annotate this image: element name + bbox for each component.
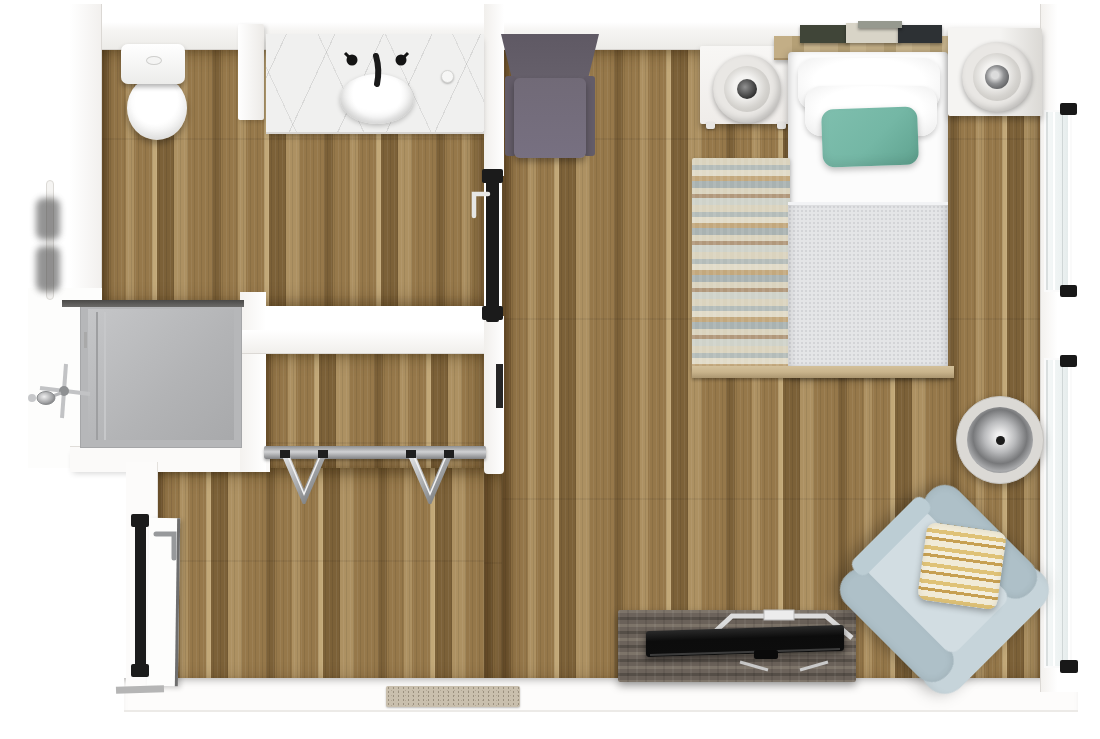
- floor-lamp-finial: [996, 436, 1005, 445]
- book: [800, 25, 848, 43]
- hanger-icon: [404, 450, 456, 504]
- floor-opening: [484, 470, 504, 686]
- toilet-flush-button: [146, 56, 162, 65]
- shower-pan-seam: [104, 312, 106, 440]
- towel: [36, 198, 60, 240]
- faucet-icon: [336, 48, 420, 96]
- table-lamp-finial: [737, 79, 757, 99]
- closet-door-track: [496, 364, 503, 408]
- throw-pillow-striped: [917, 522, 1007, 610]
- wall-shower-closet-divider: [240, 292, 266, 472]
- throw-pillow-teal: [821, 106, 919, 167]
- wall-toilet-partition: [238, 24, 264, 120]
- nightstand-foot: [706, 122, 715, 129]
- window-clip: [1060, 103, 1077, 115]
- studio-floor-plan: [0, 0, 1100, 739]
- wall-closet-top: [240, 330, 504, 354]
- doormat: [386, 686, 520, 707]
- bed-blanket: [788, 202, 948, 366]
- book: [898, 25, 942, 43]
- entry-door-handle-icon: [150, 524, 180, 564]
- accent-chair-back: [501, 34, 599, 82]
- window-clip: [1060, 355, 1077, 367]
- wall-interior-upper: [484, 4, 504, 176]
- toilet-bowl: [127, 76, 187, 140]
- hanger-icon: [278, 450, 330, 504]
- door-track-cap: [482, 169, 503, 183]
- window-lower: [1044, 358, 1072, 668]
- shower-hook: [84, 332, 87, 348]
- shower-pan-seam: [96, 312, 98, 440]
- door-track-cap: [131, 664, 149, 677]
- door-track-cap: [131, 514, 149, 527]
- book: [858, 21, 902, 28]
- window-clip: [1060, 285, 1077, 297]
- window-clip: [1060, 660, 1078, 673]
- table-lamp-finial: [985, 65, 1009, 89]
- shower-glass-screen: [62, 300, 244, 307]
- bed-foot-rail: [692, 366, 954, 378]
- striped-runner-rug: [692, 158, 790, 368]
- tv-mount: [754, 650, 778, 659]
- accent-chair-seat: [514, 78, 586, 158]
- door-track-cap: [482, 306, 503, 320]
- towel: [36, 246, 60, 292]
- window-upper: [1044, 110, 1072, 292]
- door-handle-icon: [464, 188, 492, 224]
- soap-dispenser: [441, 70, 454, 83]
- nightstand-foot: [777, 122, 786, 129]
- shower-valve-icon: [28, 352, 92, 430]
- entry-door-track: [135, 518, 146, 676]
